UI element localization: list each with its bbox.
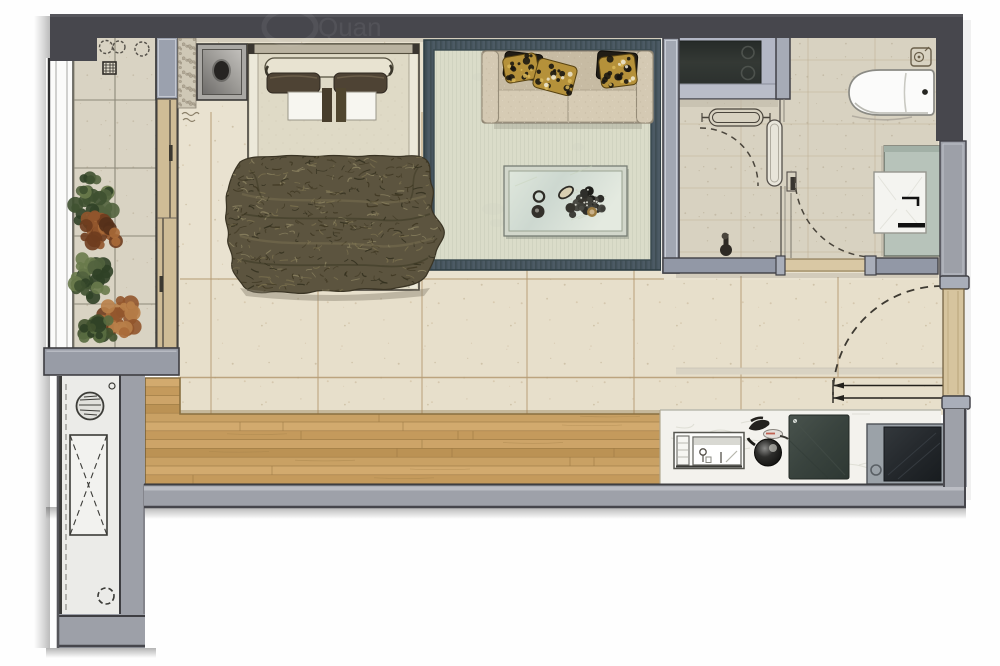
svg-text:Quan: Quan: [318, 12, 382, 42]
